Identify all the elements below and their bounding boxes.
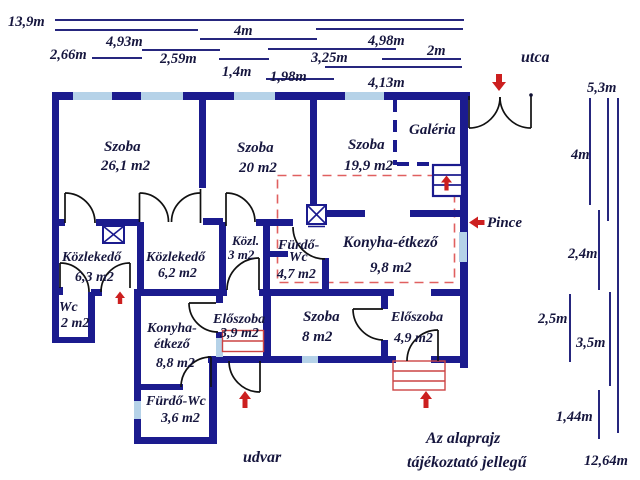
svg-text:5,3m: 5,3m — [587, 80, 616, 96]
svg-text:Fürdő-Wc: Fürdő-Wc — [145, 394, 207, 409]
svg-text:Közl.: Közl. — [231, 233, 259, 248]
svg-text:19,9 m2: 19,9 m2 — [344, 158, 394, 174]
svg-text:Közlekedő: Közlekedő — [61, 250, 122, 265]
svg-text:3,25m: 3,25m — [310, 50, 348, 66]
svg-text:1,44m: 1,44m — [556, 409, 593, 425]
svg-text:4,98m: 4,98m — [367, 33, 405, 49]
svg-text:4m: 4m — [233, 23, 253, 39]
svg-text:1,4m: 1,4m — [222, 64, 251, 80]
svg-text:2,4m: 2,4m — [567, 246, 597, 262]
svg-text:6,3 m2: 6,3 m2 — [75, 270, 114, 285]
svg-text:4,93m: 4,93m — [105, 34, 143, 50]
svg-text:Szoba: Szoba — [303, 309, 340, 325]
svg-text:3,6 m2: 3,6 m2 — [160, 411, 200, 426]
svg-text:Pince: Pince — [487, 215, 522, 231]
svg-text:Konyha-: Konyha- — [146, 321, 197, 336]
svg-text:13,9m: 13,9m — [8, 14, 45, 30]
svg-text:Konyha-étkező: Konyha-étkező — [342, 234, 439, 251]
svg-text:6,2 m2: 6,2 m2 — [158, 266, 197, 281]
svg-text:4,13m: 4,13m — [367, 75, 405, 91]
svg-text:Wc: Wc — [289, 250, 308, 265]
svg-text:Wc: Wc — [59, 300, 78, 315]
svg-text:2,59m: 2,59m — [159, 51, 197, 67]
svg-text:udvar: udvar — [243, 449, 282, 466]
svg-text:2,66m: 2,66m — [49, 47, 87, 63]
svg-text:Szoba: Szoba — [237, 140, 274, 156]
svg-text:3,9 m2: 3,9 m2 — [219, 326, 259, 341]
svg-text:Előszoba: Előszoba — [212, 312, 265, 327]
svg-text:utca: utca — [521, 49, 549, 66]
svg-text:3 m2: 3 m2 — [227, 247, 255, 262]
svg-text:Szoba: Szoba — [104, 139, 141, 155]
svg-text:Közlekedő: Közlekedő — [145, 250, 206, 265]
svg-text:Szoba: Szoba — [348, 137, 385, 153]
svg-text:12,64m: 12,64m — [584, 453, 628, 469]
svg-text:2 m2: 2 m2 — [60, 316, 89, 331]
svg-text:4,9 m2: 4,9 m2 — [393, 331, 433, 346]
svg-text:2,5m: 2,5m — [537, 311, 567, 327]
svg-text:4m: 4m — [570, 147, 590, 163]
svg-text:2m: 2m — [426, 43, 446, 59]
svg-text:20 m2: 20 m2 — [238, 160, 277, 176]
svg-text:3,5m: 3,5m — [575, 335, 605, 351]
svg-text:étkező: étkező — [154, 337, 191, 352]
svg-text:4,7 m2: 4,7 m2 — [276, 267, 316, 282]
svg-text:Előszoba: Előszoba — [390, 310, 443, 325]
svg-text:8 m2: 8 m2 — [302, 329, 333, 345]
svg-text:Az alaprajz: Az alaprajz — [425, 430, 501, 447]
svg-text:1,98m: 1,98m — [270, 69, 307, 85]
svg-text:Galéria: Galéria — [409, 122, 456, 138]
svg-text:tájékoztató jellegű: tájékoztató jellegű — [407, 454, 528, 471]
svg-text:8,8 m2: 8,8 m2 — [156, 356, 195, 371]
svg-text:9,8 m2: 9,8 m2 — [370, 260, 412, 276]
svg-text:26,1 m2: 26,1 m2 — [100, 158, 151, 174]
